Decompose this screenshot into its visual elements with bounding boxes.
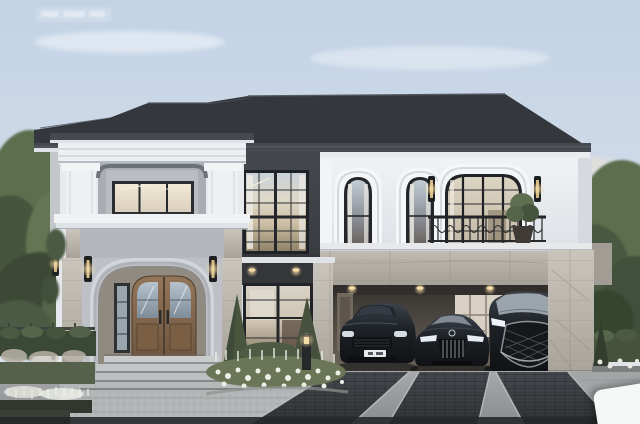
bottom-curb-shadow [0,417,640,424]
rendering-canvas [0,0,640,424]
entry-arch [92,260,212,372]
arched-window-1 [334,168,382,256]
tower-balcony-window [112,181,194,215]
marble-pier [548,250,594,376]
arched-window-2 [396,168,444,256]
tower-parapet [62,229,242,258]
cloud [310,46,550,70]
watermark [36,7,112,22]
entry-door [132,276,196,358]
entablature [58,143,246,164]
garden-left [0,323,96,424]
cloud [35,31,225,53]
house-rendering [0,0,640,424]
